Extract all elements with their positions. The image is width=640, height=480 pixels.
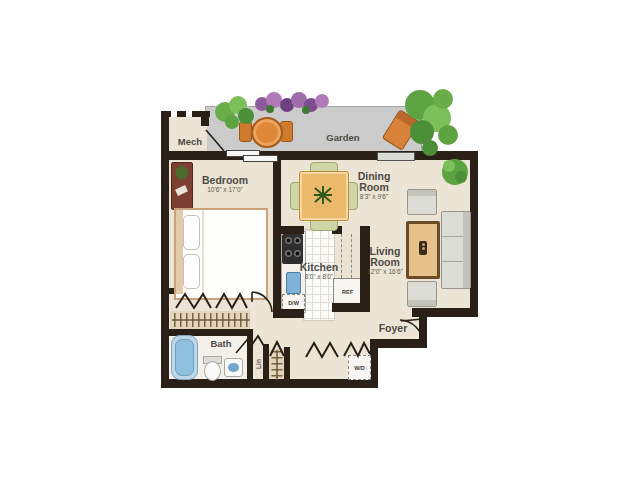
bedroom-label: Bedroom — [180, 175, 270, 186]
toilet-bowl — [204, 361, 221, 381]
garden-table — [251, 117, 283, 148]
mech-label-block: Mech — [172, 137, 208, 147]
kitchen-bottom-wall-left — [273, 309, 304, 318]
bed — [174, 208, 268, 300]
pillow — [183, 254, 200, 289]
garden-label-block: Garden — [318, 133, 368, 143]
kitchen-label: Kitchen — [293, 262, 345, 273]
bedroom-kitchen-wall — [273, 158, 281, 318]
pillow — [183, 215, 200, 250]
foyer-label: Foyer — [370, 323, 416, 334]
sofa — [441, 211, 471, 289]
bedroom-label-block: Bedroom 10'6" x 17'0" — [180, 175, 270, 194]
stove-burner — [285, 250, 292, 257]
bedroom-dims: 10'6" x 17'0" — [180, 187, 270, 194]
top-wall — [161, 151, 478, 160]
coat-closet-floor — [269, 349, 284, 380]
bath-top-wall — [161, 329, 253, 336]
floor-plan: D/W REF — [0, 0, 640, 480]
living-label-line2: Room — [362, 257, 408, 268]
stove-burner — [285, 237, 292, 244]
bathtub — [171, 335, 198, 380]
bath-right-wall — [247, 332, 253, 380]
bottom-wall — [161, 379, 378, 388]
foyer-bottom-wall — [372, 339, 427, 348]
washer-dryer: W/D — [348, 355, 371, 380]
kitchen-label-block: Kitchen 8'0" x 8'0" — [293, 262, 345, 281]
stove — [282, 234, 303, 264]
bath-sink — [224, 358, 243, 377]
dishwasher-label: D/W — [288, 300, 299, 306]
bedroom-closet-floor — [170, 311, 250, 330]
linen-label-block: Lin — [256, 352, 268, 376]
stove-burner — [294, 250, 301, 257]
dining-table — [299, 171, 349, 221]
foyer-label-block: Foyer — [370, 323, 416, 334]
linen-label: Lin — [256, 352, 263, 376]
dining-label-line2: Room — [349, 182, 399, 193]
right-wall — [470, 151, 478, 317]
refrigerator-label: REF — [342, 289, 353, 295]
coffee-table — [406, 221, 440, 279]
living-dims: 12'0" x 16'6" — [362, 269, 408, 276]
bedroom-sliding-door-panel — [243, 155, 278, 162]
living-label-block: Living Room 12'0" x 16'6" — [362, 246, 408, 276]
mech-right-wall-stub — [201, 111, 209, 126]
refrigerator: REF — [333, 278, 362, 305]
armchair-top — [407, 189, 437, 215]
dining-dims: 8'3" x 9'6" — [349, 194, 399, 201]
stove-burner — [294, 237, 301, 244]
armchair-bottom — [407, 281, 437, 307]
coat-closet-right-wall — [284, 347, 290, 380]
mech-label: Mech — [172, 137, 208, 147]
dining-label-block: Dining Room 8'3" x 9'6" — [349, 171, 399, 201]
garden-label: Garden — [318, 133, 368, 143]
bath-label: Bath — [200, 339, 242, 349]
washer-dryer-label: W/D — [354, 365, 365, 371]
kitchen-bottom-wall-right — [332, 303, 370, 312]
bath-label-block: Bath — [200, 339, 242, 349]
kitchen-dims: 8'0" x 8'0" — [293, 274, 345, 281]
kitchen-top-wall-left — [273, 226, 304, 234]
coffee-table-decor — [419, 241, 427, 255]
living-sliding-door — [377, 152, 415, 161]
